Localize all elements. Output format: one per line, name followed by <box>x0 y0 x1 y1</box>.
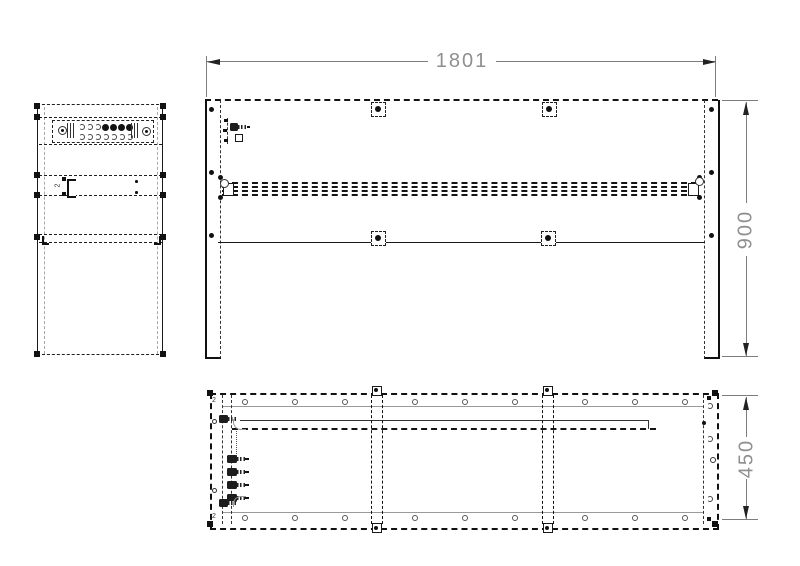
screw-mark <box>111 134 117 140</box>
bolt-tip <box>245 458 249 460</box>
cable-channel-edge <box>240 420 648 421</box>
bolt-thread <box>238 125 247 129</box>
dim-depth-label: 450 <box>736 424 759 494</box>
screw-hole <box>242 515 248 521</box>
edge-connector <box>34 114 40 120</box>
screw-mark <box>707 496 713 502</box>
cable-rail-line <box>222 190 697 192</box>
leg-bolt <box>209 233 214 238</box>
cable-rail-line <box>222 194 697 196</box>
plan-view-outline <box>210 393 719 530</box>
bolt-head-symbol <box>102 124 109 131</box>
dim-arrow-up <box>743 102 749 115</box>
front-view-right-leg <box>704 100 720 359</box>
screw-hole <box>682 399 688 405</box>
cross-rail-bolt <box>545 388 549 392</box>
bracket-bolt <box>62 177 66 181</box>
side-view-bottom-edge <box>37 354 164 355</box>
dim-arrow-left <box>207 59 220 65</box>
bolt-thread <box>237 457 245 461</box>
screw-hole <box>212 419 217 424</box>
cross-rail <box>371 395 372 524</box>
leg-bolt <box>209 107 214 112</box>
hex-bolt-symbol <box>227 455 237 463</box>
side-view-left-edge <box>37 105 38 356</box>
cable-channel-dashed <box>232 428 656 430</box>
bolt-thread <box>237 483 245 487</box>
dim-width-label: 1801 <box>420 50 504 73</box>
quantity-label: 2 <box>54 184 61 188</box>
corner-connector <box>160 351 166 357</box>
cross-rail <box>542 395 543 524</box>
rail-washer <box>220 179 229 188</box>
leg-bolt <box>709 233 714 238</box>
corner-connector <box>207 390 213 396</box>
corner-connector <box>160 103 166 109</box>
side-view-rail-line <box>39 175 162 176</box>
dim-line <box>746 256 747 356</box>
screw-mark <box>87 124 93 130</box>
hatch-block <box>67 123 75 138</box>
rail-bolt <box>697 195 702 200</box>
front-view-left-leg <box>205 100 221 359</box>
side-view-seam-line <box>39 234 162 235</box>
side-view-rail-line <box>39 195 162 196</box>
screw-hole <box>342 399 348 405</box>
hex-bolt-symbol <box>219 415 228 423</box>
cable-dotted-line <box>236 431 237 456</box>
fitting-tab <box>224 119 228 122</box>
screw-hole <box>632 515 638 521</box>
edge-connector <box>34 192 40 198</box>
screw-hole <box>682 515 688 521</box>
screw-dot <box>135 191 138 194</box>
hatch-block <box>131 123 139 138</box>
quantity-label: 2 <box>212 397 216 404</box>
edge-connector <box>160 234 166 240</box>
side-view-seam-line <box>39 117 162 118</box>
edge-connector <box>160 192 166 198</box>
front-view-panel-bottom-edge <box>218 242 705 243</box>
screw-dot <box>135 180 138 183</box>
fastener-marker-bolt <box>375 235 381 241</box>
cable-curve <box>233 496 246 507</box>
dim-line <box>207 61 428 62</box>
corner-connector <box>712 390 718 396</box>
quantity-label: 2 <box>212 513 216 520</box>
bolt-thread <box>237 470 245 474</box>
screw-hole <box>412 515 418 521</box>
plan-panel-edge <box>222 512 704 513</box>
screw-hole <box>212 488 217 493</box>
dim-arrow-up <box>743 397 749 410</box>
bolt-tip <box>245 484 249 486</box>
hex-bolt-symbol <box>227 468 237 476</box>
screw-mark <box>103 134 109 140</box>
fastener-marker-bolt <box>375 106 381 112</box>
fastener-marker-bolt <box>546 106 552 112</box>
side-view-seam-line <box>39 242 162 243</box>
bolt-tip <box>245 471 249 473</box>
rail-washer <box>695 177 704 186</box>
corner-connector <box>34 103 40 109</box>
edge-connector <box>34 172 40 178</box>
front-view-top-edge <box>205 99 718 101</box>
rail-bracket-symbol <box>67 179 76 198</box>
cross-rail-bolt <box>374 526 378 530</box>
screw-hole <box>412 399 418 405</box>
screw-hole <box>342 515 348 521</box>
edge-connector <box>707 517 711 521</box>
hex-bolt-symbol <box>227 481 237 489</box>
dim-extension-line <box>722 395 758 396</box>
screw-mark <box>95 134 101 140</box>
hex-bolt-symbol <box>219 499 228 507</box>
bolt-symbol <box>145 130 148 133</box>
screw-hole <box>710 457 716 463</box>
cross-rail <box>382 395 383 524</box>
screw-hole <box>582 515 588 521</box>
cross-rail-bolt <box>545 526 549 530</box>
fitting-plate <box>235 134 243 142</box>
leg-bolt <box>709 170 714 175</box>
drawing-canvas: 2 <box>0 0 800 566</box>
dim-extension-line <box>722 356 758 357</box>
side-view-right-edge <box>162 105 163 356</box>
bolt-head-symbol <box>118 124 125 131</box>
rail-bolt <box>702 421 706 425</box>
dim-extension-line <box>722 100 758 101</box>
screw-mark <box>707 403 713 409</box>
screw-hole <box>462 399 468 405</box>
bolt-tip <box>247 126 250 128</box>
dim-arrow-down <box>743 506 749 519</box>
dim-extension-line <box>722 519 758 520</box>
screw-hole <box>512 399 518 405</box>
plan-right-column <box>703 395 704 524</box>
cable-rail-line <box>222 182 697 184</box>
plan-panel-edge <box>222 406 704 407</box>
cross-rail <box>553 395 554 524</box>
fitting-tab <box>224 139 228 142</box>
cable-rail-line <box>222 186 697 188</box>
leg-bolt <box>209 170 214 175</box>
fastener-marker-bolt <box>545 235 551 241</box>
dim-height-label: 900 <box>735 195 758 265</box>
dim-line <box>746 102 747 203</box>
screw-hole <box>512 515 518 521</box>
cross-rail-bolt <box>374 388 378 392</box>
screw-mark <box>707 436 713 442</box>
screw-hole <box>292 399 298 405</box>
hex-bolt-symbol <box>230 123 238 131</box>
bracket-bolt <box>62 192 66 196</box>
corner-connector <box>712 521 718 527</box>
dim-arrow-right <box>703 59 716 65</box>
hook-symbol <box>42 236 49 245</box>
screw-mark <box>87 134 93 140</box>
screw-mark <box>79 134 85 140</box>
edge-connector <box>34 234 40 240</box>
screw-hole <box>462 515 468 521</box>
screw-mark <box>79 124 85 130</box>
screw-hole <box>242 399 248 405</box>
leg-bolt <box>709 107 714 112</box>
screw-hole <box>292 515 298 521</box>
edge-connector <box>160 172 166 178</box>
dim-arrow-down <box>743 343 749 356</box>
edge-connector <box>160 114 166 120</box>
fitting-tab <box>223 129 227 132</box>
rail-bolt <box>218 195 223 200</box>
side-view-top-edge <box>37 104 164 105</box>
dim-line <box>496 61 716 62</box>
edge-connector <box>707 396 711 400</box>
bolt-head-symbol <box>110 124 117 131</box>
screw-hole <box>582 399 588 405</box>
corner-connector <box>34 351 40 357</box>
side-view-seam-line <box>39 144 162 145</box>
screw-mark <box>119 134 125 140</box>
screw-mark <box>95 124 101 130</box>
corner-connector <box>207 521 213 527</box>
bolt-symbol <box>61 129 64 132</box>
screw-hole <box>632 399 638 405</box>
